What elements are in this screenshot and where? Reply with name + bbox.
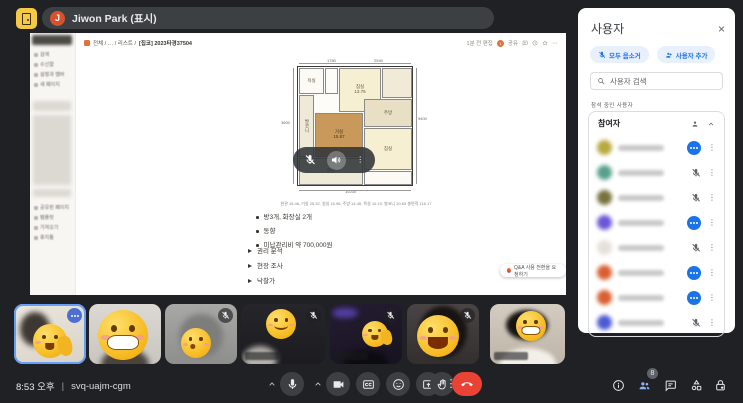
video-tile[interactable]: [490, 304, 565, 364]
phone-icon: [460, 377, 474, 391]
clock-time: 8:53 오후: [16, 379, 55, 393]
notion-sidebar: 검색 수신함 설정과 멤버 새 페이지 공유된 페이지 템플릿 가져오기 휴지통: [30, 33, 76, 295]
speaking-indicator: [687, 266, 701, 280]
bullet-item: 동향: [256, 225, 332, 235]
face-emoji-overlay: [266, 309, 296, 339]
toggle-arrow-icon: [248, 249, 252, 253]
meeting-info: 8:53 오후 | svq-uajm-cgm: [16, 379, 131, 393]
sidebar-item-new-page[interactable]: 새 페이지: [34, 81, 72, 88]
participant-menu-icon[interactable]: ⋮: [708, 144, 716, 152]
participant-list: ⋮⋮⋮⋮⋮⋮⋮⋮: [589, 135, 724, 335]
room-bath: 욕실: [299, 68, 324, 94]
participant-row[interactable]: ⋮: [589, 210, 724, 235]
presenter-pill[interactable]: J Jiwon Park (표시): [42, 7, 494, 29]
camera-options-chevron[interactable]: [312, 378, 324, 390]
video-tile[interactable]: [241, 304, 325, 364]
speaking-indicator: [687, 291, 701, 305]
collapse-icon[interactable]: [707, 120, 715, 128]
participant-row[interactable]: ⋮: [589, 235, 724, 260]
face-emoji-overlay: [417, 315, 459, 357]
camera-button[interactable]: [326, 372, 350, 396]
sidebar-item-trash[interactable]: 휴지통: [34, 234, 73, 241]
captions-icon: [362, 378, 375, 391]
speaking-indicator: [687, 216, 701, 230]
toggle-item[interactable]: 낙찰가: [248, 275, 283, 285]
toggle-arrow-icon: [248, 279, 252, 283]
video-tile[interactable]: [165, 304, 237, 364]
sparkle-icon: [507, 268, 511, 273]
favorite-icon[interactable]: [542, 40, 548, 46]
participant-row[interactable]: ⋮: [589, 185, 724, 210]
avatar: [597, 315, 612, 330]
chat-button[interactable]: [662, 377, 678, 393]
video-tile[interactable]: [14, 304, 86, 364]
presenter-avatar: J: [50, 11, 65, 26]
toggle-arrow-icon: [248, 264, 252, 268]
notion-main: 전체 / … / 리스트 / [집코] 2023타경37504 1분 전 편집 …: [76, 33, 566, 295]
mic-button[interactable]: [280, 372, 304, 396]
add-user-button[interactable]: 사용자 추가: [657, 46, 716, 63]
participant-name-redacted: [618, 320, 664, 326]
person-add-icon: [665, 51, 673, 59]
participants-header[interactable]: 참여자: [589, 112, 724, 135]
avatar: [597, 215, 612, 230]
people-button[interactable]: [636, 377, 652, 393]
participant-menu-icon[interactable]: ⋮: [708, 244, 716, 252]
mic-off-icon: [691, 168, 701, 178]
mic-icon: [286, 378, 299, 391]
participant-menu-icon[interactable]: ⋮: [708, 269, 716, 277]
search-input[interactable]: 사용자 검색: [590, 72, 723, 90]
people-panel: 사용자 × 모두 음소거 사용자 추가 사용자 검색 참석 중인 사용자 참여자…: [578, 8, 735, 333]
more-icon[interactable]: [552, 40, 558, 46]
comments-icon[interactable]: [522, 40, 528, 46]
speaking-indicator: [687, 141, 701, 155]
mic-off-icon[interactable]: [304, 154, 316, 166]
avatar: [597, 240, 612, 255]
mute-all-button[interactable]: 모두 음소거: [590, 46, 649, 63]
sidebar-item-inbox[interactable]: 수신함: [34, 61, 72, 68]
page-icon: [84, 40, 90, 46]
avatar: [597, 140, 612, 155]
video-tile[interactable]: [330, 304, 402, 364]
host-controls-button[interactable]: [712, 377, 728, 393]
avatar: [597, 290, 612, 305]
sidebar-item-import[interactable]: 가져오기: [34, 224, 73, 231]
presenting-overlay[interactable]: ⋮: [293, 147, 375, 173]
edited-time: 1분 전 편집: [467, 39, 493, 47]
participant-menu-icon[interactable]: ⋮: [708, 194, 716, 202]
participant-menu-icon[interactable]: ⋮: [708, 294, 716, 302]
mic-off-badge: [383, 308, 398, 323]
meeting-code: svq-uajm-cgm: [71, 381, 131, 392]
close-icon[interactable]: ×: [718, 23, 725, 35]
participant-row[interactable]: ⋮: [589, 160, 724, 185]
face-emoji-overlay: [516, 311, 546, 341]
bullet-item: 방3개, 화장실 2개: [256, 211, 332, 221]
door-icon: [22, 13, 31, 25]
mic-off-icon: [691, 193, 701, 203]
sidebar-tree-redacted: [33, 189, 71, 197]
toggle-item[interactable]: 권리 분석: [248, 245, 283, 255]
avatar: [597, 165, 612, 180]
participant-row[interactable]: ⋮: [589, 310, 724, 335]
face-emoji-overlay: [181, 328, 211, 358]
video-tile[interactable]: [89, 304, 161, 364]
tile-name-redacted: [494, 352, 528, 360]
participant-row[interactable]: ⋮: [589, 260, 724, 285]
participant-name-redacted: [618, 220, 664, 226]
panel-title: 사용자: [591, 20, 624, 37]
hand-emoji: [379, 329, 393, 346]
speaker-icon: [330, 154, 342, 166]
participant-row[interactable]: ⋮: [589, 285, 724, 310]
hand-emoji: [56, 335, 75, 358]
qa-request-button[interactable]: Q&A 사용 전환을 요청하기: [500, 264, 566, 277]
participant-count-icon: [691, 120, 699, 128]
history-icon[interactable]: [532, 40, 538, 46]
face-emoji-overlay: [362, 321, 388, 347]
toggle-list: 권리 분석 현장 조사 낙찰가: [248, 245, 283, 290]
viewer-avatar: 1: [497, 40, 504, 47]
toggle-item[interactable]: 현장 조사: [248, 260, 283, 270]
participant-name-redacted: [618, 270, 664, 276]
overlay-more-icon[interactable]: ⋮: [356, 156, 364, 164]
people-count-badge: 8: [647, 368, 658, 379]
avatar: [597, 190, 612, 205]
face-emoji-overlay: [98, 310, 148, 360]
participant-name-redacted: [618, 295, 664, 301]
mic-off-icon: [598, 51, 606, 59]
reactions-button[interactable]: [386, 372, 410, 396]
participant-name-redacted: [618, 170, 664, 176]
participants-card: 참여자 ⋮⋮⋮⋮⋮⋮⋮⋮: [588, 111, 725, 337]
face-emoji-overlay: [33, 324, 67, 358]
mic-off-badge: [218, 308, 233, 323]
participant-menu-icon[interactable]: ⋮: [708, 169, 716, 177]
share-button[interactable]: 공유: [508, 39, 518, 47]
tile-name-redacted: [245, 352, 279, 360]
mic-off-icon: [691, 318, 701, 328]
avatar: [597, 265, 612, 280]
room-kitchen: 주방: [364, 99, 412, 127]
mic-off-badge: [460, 308, 475, 323]
participant-name-redacted: [618, 195, 664, 201]
end-call-button[interactable]: [452, 372, 482, 396]
workspace-chip-redacted[interactable]: [32, 35, 72, 45]
sidebar-item-templates[interactable]: 템플릿: [34, 214, 73, 221]
info-button[interactable]: [610, 377, 626, 393]
plan-caption: 현관 15.46, 거실 25.32, 침실 16.96, 주방 14.45, …: [236, 201, 476, 207]
participant-row[interactable]: ⋮: [589, 135, 724, 160]
camera-icon: [332, 378, 345, 391]
sidebar-item-settings[interactable]: 설정과 멤버: [34, 71, 72, 78]
presenter-name: Jiwon Park (표시): [72, 11, 157, 26]
audio-button[interactable]: [327, 151, 346, 170]
mic-options-chevron[interactable]: [266, 378, 278, 390]
breadcrumb[interactable]: 전체 / … / 리스트 / [집코] 2023타경37504: [84, 39, 192, 47]
mic-off-badge: [306, 308, 321, 323]
smiley-icon: [392, 378, 405, 391]
sidebar-item-search[interactable]: 검색: [34, 51, 72, 58]
sidebar-tree-redacted: [33, 115, 71, 185]
mic-off-icon: [691, 243, 701, 253]
participant-name-redacted: [618, 245, 664, 251]
captions-button[interactable]: [356, 372, 380, 396]
participant-menu-icon[interactable]: ⋮: [708, 319, 716, 327]
floor-plan-image: 1780 2540 9400 3600 10230 욕실 침실13.75 발코니…: [279, 58, 429, 196]
sidebar-tree-redacted: [33, 101, 71, 111]
participant-name-redacted: [618, 145, 664, 151]
search-icon: [597, 77, 605, 85]
google-meet-window: J Jiwon Park (표시) 검색 수신함 설정과 멤버 새 페이지 공유…: [0, 0, 743, 403]
participant-menu-icon[interactable]: ⋮: [708, 219, 716, 227]
speaking-indicator: [67, 308, 82, 323]
sidebar-item-shared-pages[interactable]: 공유된 페이지: [34, 204, 73, 211]
video-tile[interactable]: [407, 304, 479, 364]
section-label: 참석 중인 사용자: [591, 101, 633, 109]
shared-screen: 검색 수신함 설정과 멤버 새 페이지 공유된 페이지 템플릿 가져오기 휴지통…: [30, 33, 566, 295]
tile-name-redacted: [334, 352, 368, 360]
presentation-app-icon: [16, 8, 37, 29]
activities-button[interactable]: [688, 377, 704, 393]
